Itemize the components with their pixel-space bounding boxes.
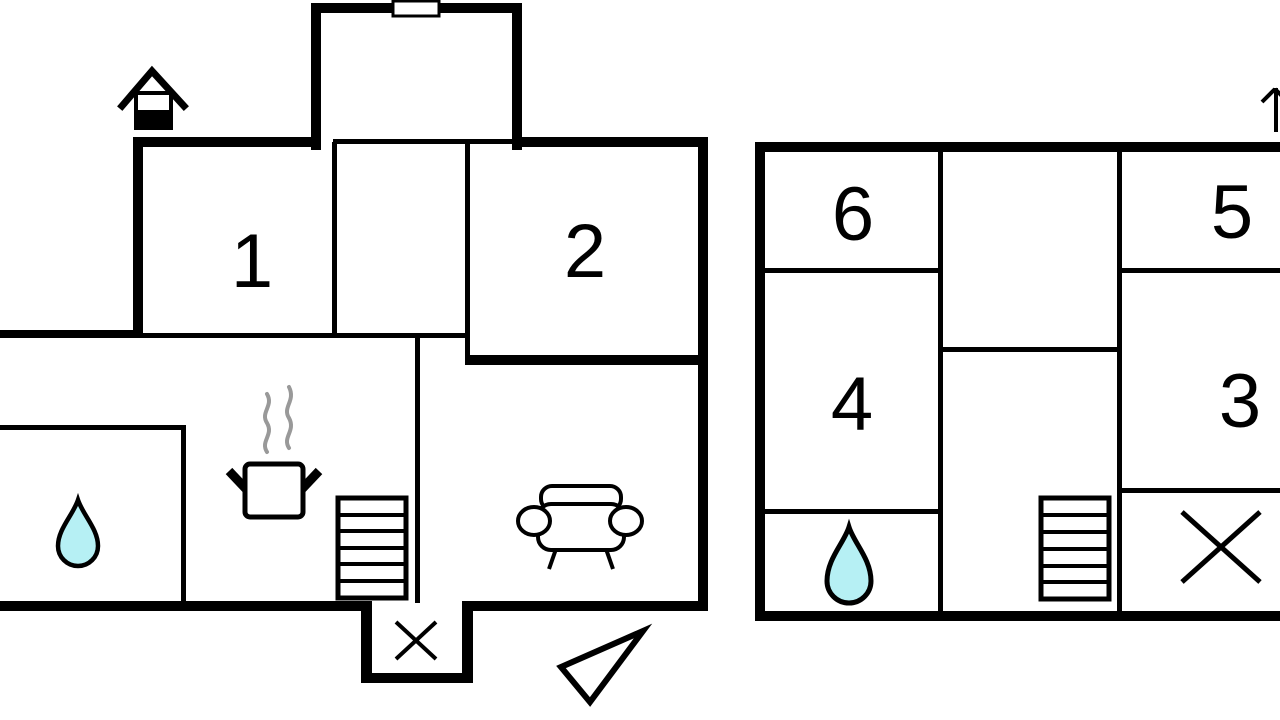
wall-segment	[765, 268, 938, 273]
floor-plan-canvas: 1 2	[0, 0, 1280, 720]
house-icon	[122, 71, 184, 128]
up-arrow-icon	[1262, 88, 1280, 132]
room-label-2: 2	[564, 209, 606, 294]
wall-segment	[332, 142, 337, 338]
room-label-1: 1	[231, 219, 273, 304]
wall-segment	[0, 425, 186, 430]
wall-segment	[133, 137, 143, 338]
wall-segment	[1117, 152, 1122, 611]
steam-icon	[265, 394, 269, 452]
wall-segment	[462, 601, 473, 683]
window-marker	[393, 1, 439, 16]
wall-segment	[415, 338, 420, 603]
wall-segment	[465, 142, 470, 365]
wall-segment	[755, 142, 765, 621]
wall-segment	[465, 355, 708, 365]
upper-floor-plan: 6 5 4 3	[755, 88, 1280, 621]
wall-segment	[755, 611, 1280, 621]
north-arrow-icon	[561, 631, 643, 702]
wall-segment	[938, 152, 943, 611]
sofa-icon	[518, 486, 642, 569]
wall-segment	[361, 673, 473, 683]
water-drop-icon	[58, 500, 98, 566]
ground-floor-plan: 1 2	[0, 1, 708, 702]
room-label-3: 3	[1219, 359, 1261, 444]
wall-segment	[943, 347, 1117, 352]
floor-plan-page: 1 2	[0, 0, 1280, 720]
stairs-icon	[1041, 498, 1109, 599]
wall-segment	[333, 139, 513, 144]
entrance-cross-icon	[396, 622, 436, 659]
stairs-icon	[338, 498, 406, 598]
room-label-5: 5	[1211, 170, 1253, 255]
room-label-6: 6	[832, 172, 874, 257]
wall-segment	[311, 3, 321, 150]
wall-segment	[517, 137, 708, 147]
pot-icon	[229, 387, 319, 517]
wall-segment	[143, 333, 470, 338]
water-drop-icon	[827, 527, 871, 603]
entrance-porch	[361, 601, 473, 683]
wall-segment	[463, 601, 708, 611]
wall-segment	[698, 137, 708, 611]
steam-icon	[287, 387, 291, 448]
wall-segment	[181, 425, 186, 603]
wall-segment	[1122, 268, 1280, 273]
wall-segment	[755, 142, 1280, 152]
room-label-4: 4	[831, 362, 873, 447]
wall-segment	[133, 137, 316, 147]
wall-segment	[0, 330, 143, 338]
cross-icon	[1182, 512, 1260, 582]
wall-segment	[765, 509, 938, 514]
wall-segment	[361, 601, 372, 683]
wall-segment	[512, 3, 522, 150]
wall-segment	[1122, 488, 1280, 493]
